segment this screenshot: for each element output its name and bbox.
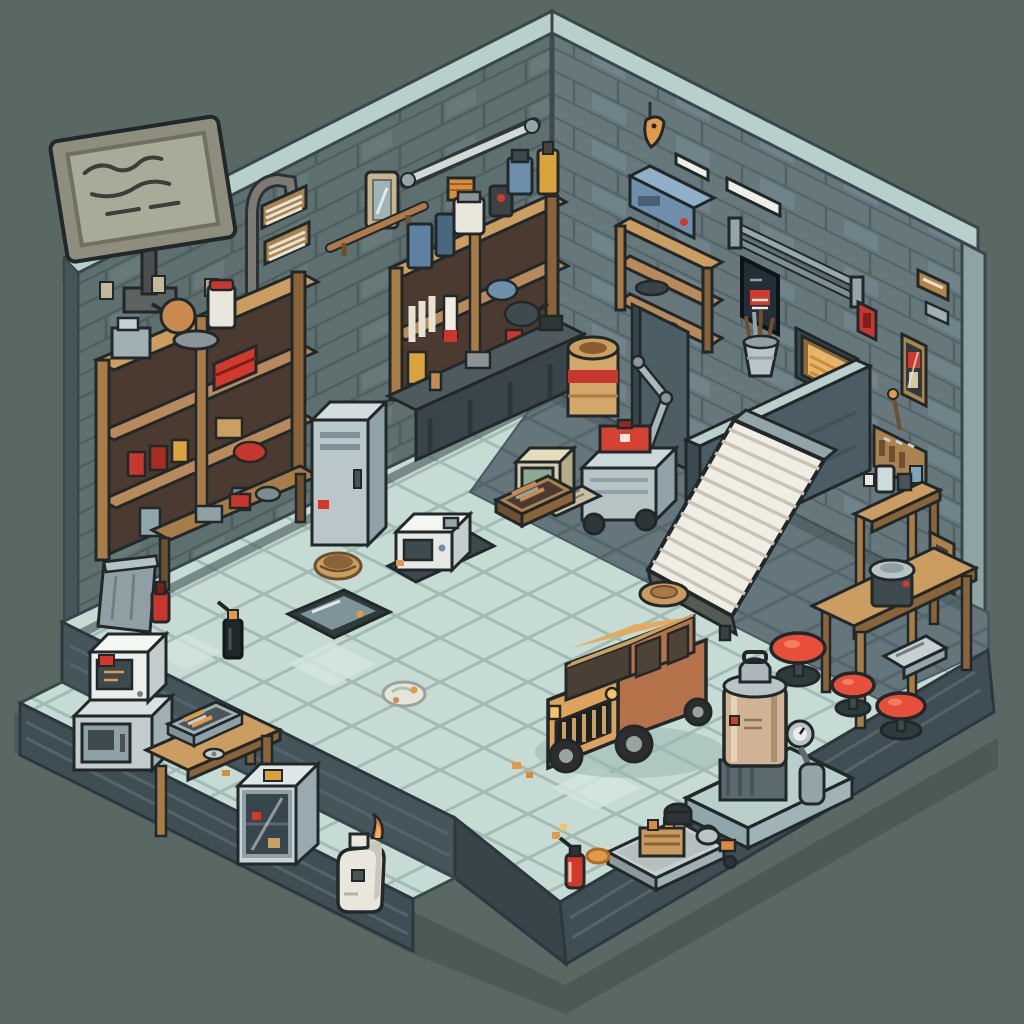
right-wall-outer-edge	[962, 242, 985, 616]
orange-part	[720, 840, 735, 851]
tv-screen	[68, 133, 219, 245]
locker-cabinet[interactable]	[312, 402, 386, 545]
rag[interactable]	[383, 682, 425, 706]
car-window-side-2	[668, 626, 688, 664]
amber-jar	[172, 440, 188, 462]
red-toolbox-on-cart	[600, 420, 650, 452]
car-headlight	[549, 706, 560, 719]
red-can-2	[150, 446, 167, 470]
wicker-basket[interactable]	[315, 553, 361, 579]
bench-grinder[interactable]	[870, 560, 914, 606]
round-pad[interactable]	[640, 582, 688, 606]
orange-rag[interactable]	[587, 849, 609, 863]
tan-box	[216, 418, 242, 438]
left-wall-outer-edge	[64, 258, 78, 632]
stool-2[interactable]	[832, 673, 874, 716]
brass-display-case[interactable]	[902, 334, 926, 406]
display-cabinet[interactable]	[238, 764, 318, 864]
red-pot	[234, 442, 266, 462]
tan-barrel[interactable]	[568, 337, 618, 416]
pixel-art-garage-scene	[0, 0, 1024, 1024]
car-headlight-2	[606, 688, 618, 700]
stool-3[interactable]	[877, 693, 925, 739]
red-can-1	[128, 452, 145, 476]
black-knob	[724, 856, 736, 868]
kettle	[697, 828, 719, 844]
metal-bin[interactable]	[98, 556, 158, 632]
